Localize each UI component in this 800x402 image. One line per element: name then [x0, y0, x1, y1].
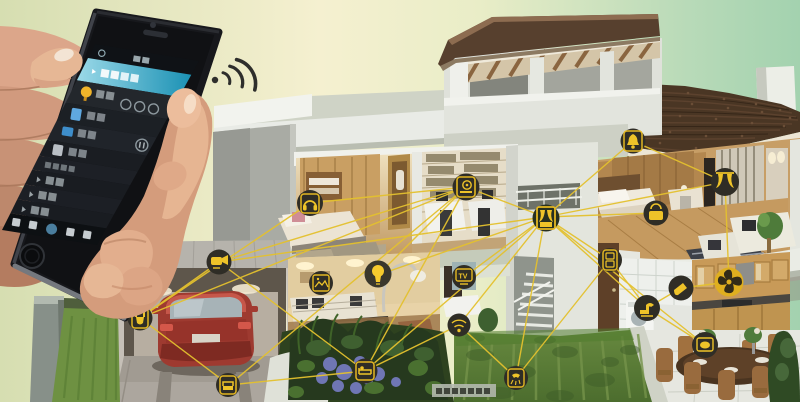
svg-text:TV: TV [459, 274, 468, 281]
